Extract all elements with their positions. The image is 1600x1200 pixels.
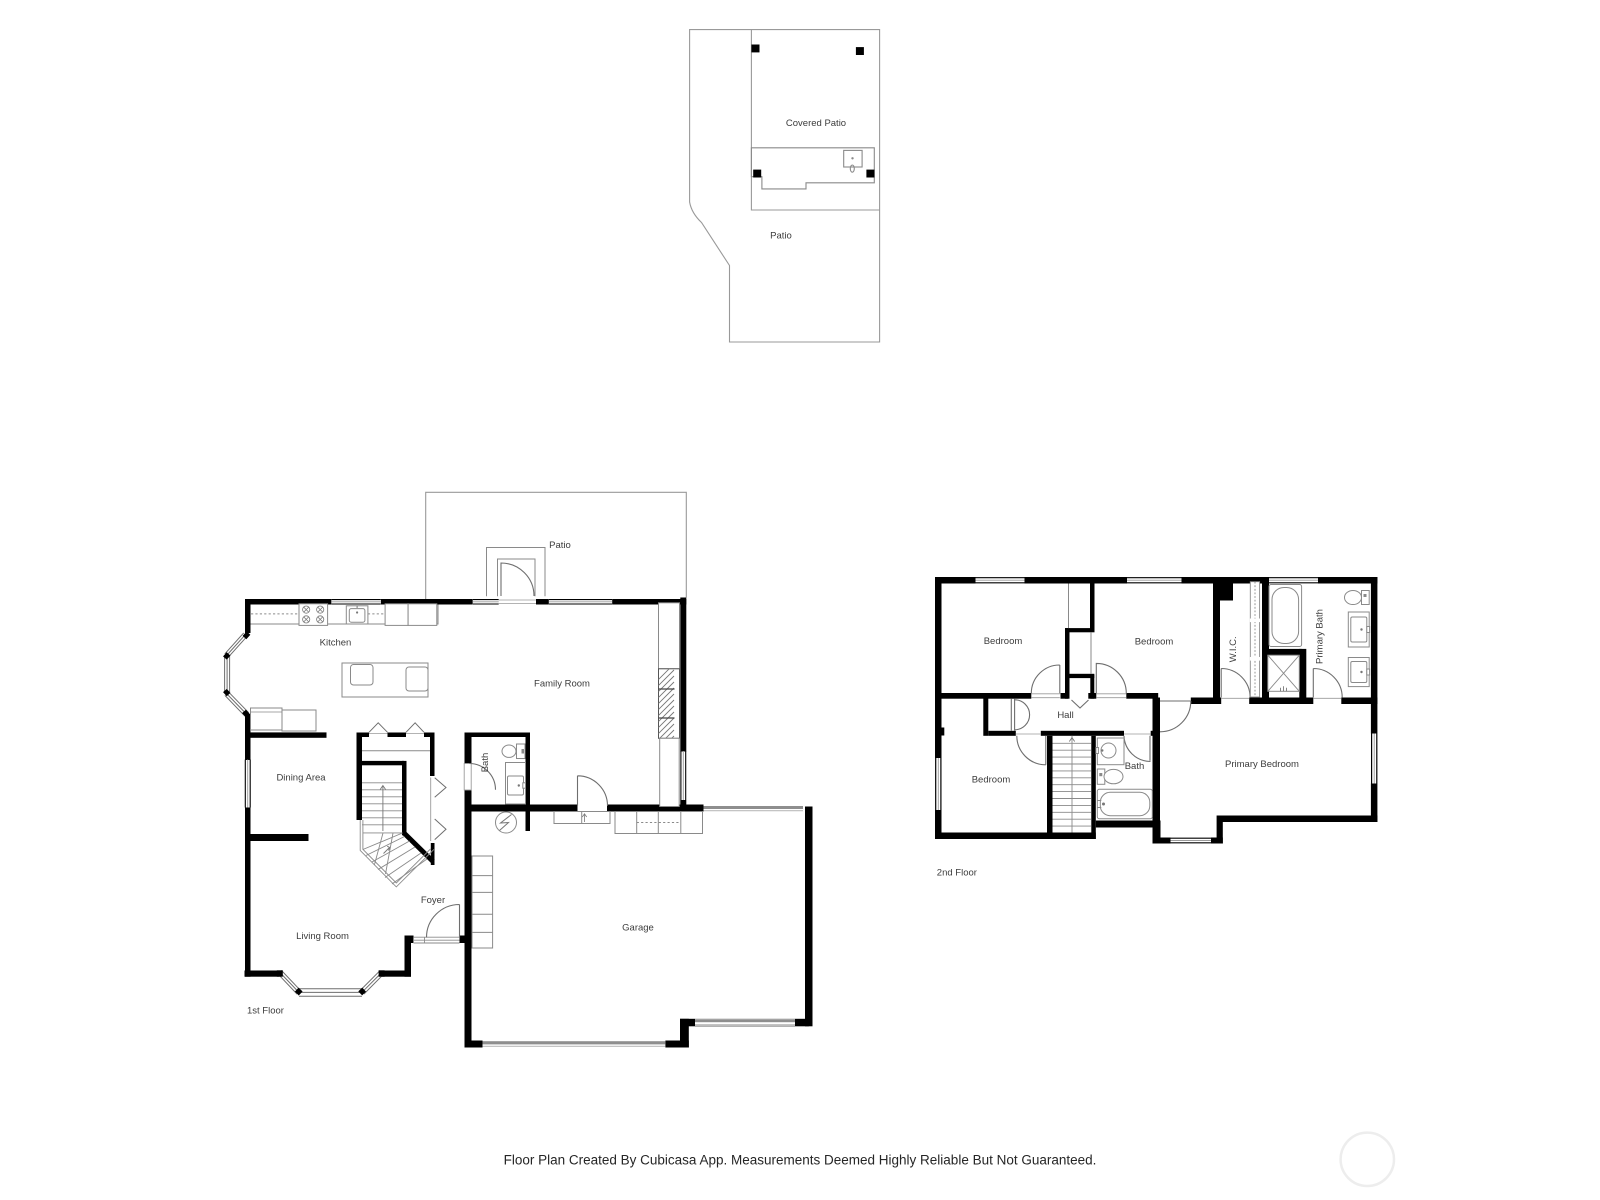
svg-text:Bedroom: Bedroom bbox=[984, 636, 1023, 647]
svg-text:Bedroom: Bedroom bbox=[1135, 637, 1174, 648]
svg-text:Family Room: Family Room bbox=[534, 679, 590, 690]
svg-text:1st Floor: 1st Floor bbox=[247, 1006, 284, 1017]
svg-text:Living Room: Living Room bbox=[296, 931, 349, 942]
svg-text:Foyer: Foyer bbox=[421, 895, 445, 906]
svg-text:Patio: Patio bbox=[770, 231, 792, 242]
svg-text:Dining Area: Dining Area bbox=[276, 773, 326, 784]
svg-text:Garage: Garage bbox=[622, 923, 654, 934]
svg-text:Primary Bath: Primary Bath bbox=[1315, 609, 1326, 664]
svg-text:Patio: Patio bbox=[549, 540, 571, 551]
svg-text:Floor Plan Created By Cubicasa: Floor Plan Created By Cubicasa App. Meas… bbox=[504, 1152, 1097, 1167]
svg-text:Hall: Hall bbox=[1057, 710, 1073, 721]
svg-text:Kitchen: Kitchen bbox=[320, 638, 352, 649]
svg-text:2nd Floor: 2nd Floor bbox=[937, 868, 977, 879]
svg-text:W.I.C.: W.I.C. bbox=[1228, 636, 1239, 662]
svg-text:Bath: Bath bbox=[1125, 761, 1145, 772]
svg-text:Primary Bedroom: Primary Bedroom bbox=[1225, 759, 1299, 770]
svg-text:Covered Patio: Covered Patio bbox=[786, 118, 846, 129]
svg-text:Bedroom: Bedroom bbox=[972, 775, 1011, 786]
svg-text:Bath: Bath bbox=[480, 753, 491, 773]
